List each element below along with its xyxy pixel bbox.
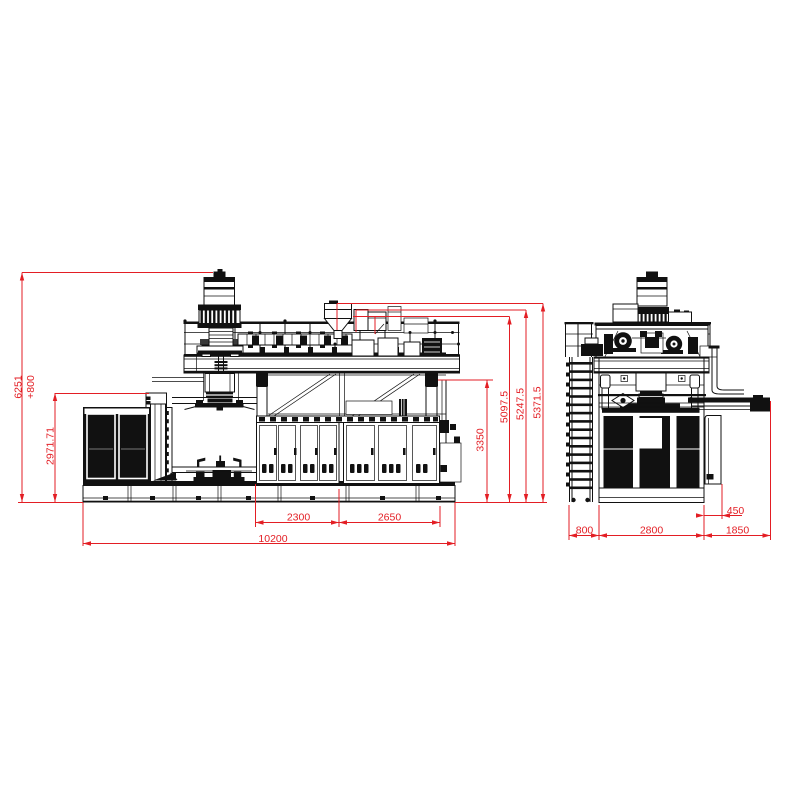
svg-text:450: 450	[727, 505, 745, 517]
svg-text:1850: 1850	[726, 525, 750, 537]
svg-text:+800: +800	[25, 375, 37, 399]
svg-text:5097.5: 5097.5	[499, 391, 511, 423]
svg-text:2971.71: 2971.71	[45, 427, 57, 465]
svg-text:10200: 10200	[258, 533, 287, 545]
svg-text:3350: 3350	[475, 428, 487, 452]
svg-text:6251: 6251	[13, 375, 25, 399]
svg-text:2650: 2650	[378, 512, 402, 524]
svg-text:5247.5: 5247.5	[515, 388, 527, 420]
svg-text:2800: 2800	[640, 525, 664, 537]
svg-text:800: 800	[576, 525, 594, 537]
svg-text:5371.5: 5371.5	[532, 386, 544, 418]
svg-text:2300: 2300	[287, 512, 311, 524]
